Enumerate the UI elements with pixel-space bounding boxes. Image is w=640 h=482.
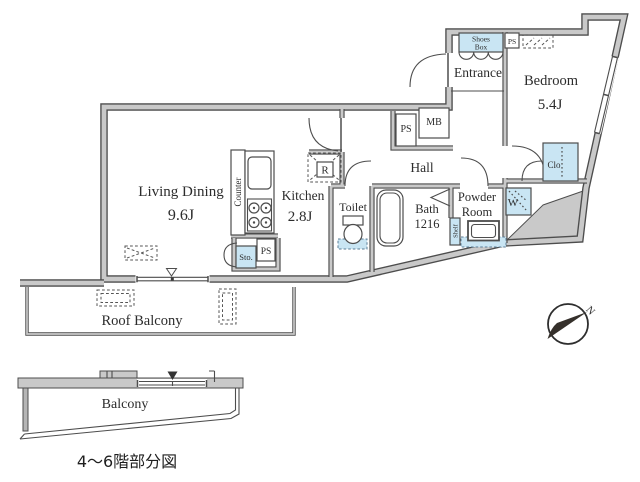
- living-dining-label: Living Dining: [138, 184, 224, 200]
- powder-room-label-line2: Room: [462, 205, 493, 219]
- balcony-left-wall: [23, 388, 28, 431]
- washbasin: [461, 221, 506, 247]
- refrigerator-label: R: [321, 165, 329, 177]
- bath-size: 1216: [415, 217, 440, 231]
- ps-top-label: PS: [508, 37, 516, 46]
- hall-label: Hall: [410, 160, 433, 175]
- closet-label: Clo: [547, 160, 561, 170]
- counter-label: Counter: [233, 178, 243, 207]
- living-dining-size: 9.6J: [168, 207, 194, 224]
- ps-shaft-top: PS: [505, 33, 519, 48]
- ps-bottom-label: PS: [261, 247, 272, 257]
- shoes-box-label-line2: Box: [475, 43, 488, 52]
- bedroom-size: 5.4J: [538, 97, 563, 113]
- floor-plan-svg: Shoes Box PS PS MB R Counter: [0, 0, 640, 482]
- washer-label: W: [508, 197, 519, 209]
- entrance-label: Entrance: [454, 65, 502, 80]
- balcony-label: Balcony: [102, 397, 149, 412]
- shelf-strip: Shelf: [450, 218, 460, 245]
- kitchen-label: Kitchen: [282, 188, 325, 203]
- ps-mid-label: PS: [400, 124, 411, 135]
- washer-space: W: [506, 188, 531, 215]
- kitchen-sink: [248, 157, 271, 189]
- bath-label: Bath: [415, 202, 439, 216]
- roof-balcony-label: Roof Balcony: [102, 313, 184, 329]
- closet: Clo: [543, 143, 578, 181]
- kitchen-fixtures: Counter: [231, 150, 274, 235]
- mb-label: MB: [426, 117, 442, 128]
- floor-plan-page: Shoes Box PS PS MB R Counter: [0, 0, 640, 482]
- kitchen-size: 2.8J: [288, 209, 313, 225]
- shelf-label: Shelf: [453, 223, 460, 238]
- bedroom-label: Bedroom: [524, 73, 579, 89]
- storage-label: Sto.: [239, 252, 252, 262]
- powder-room-label-line1: Powder: [458, 190, 497, 204]
- bath-tub: [377, 190, 403, 246]
- floor-caption: 4〜6階部分図: [77, 452, 177, 471]
- toilet-label: Toilet: [339, 200, 367, 214]
